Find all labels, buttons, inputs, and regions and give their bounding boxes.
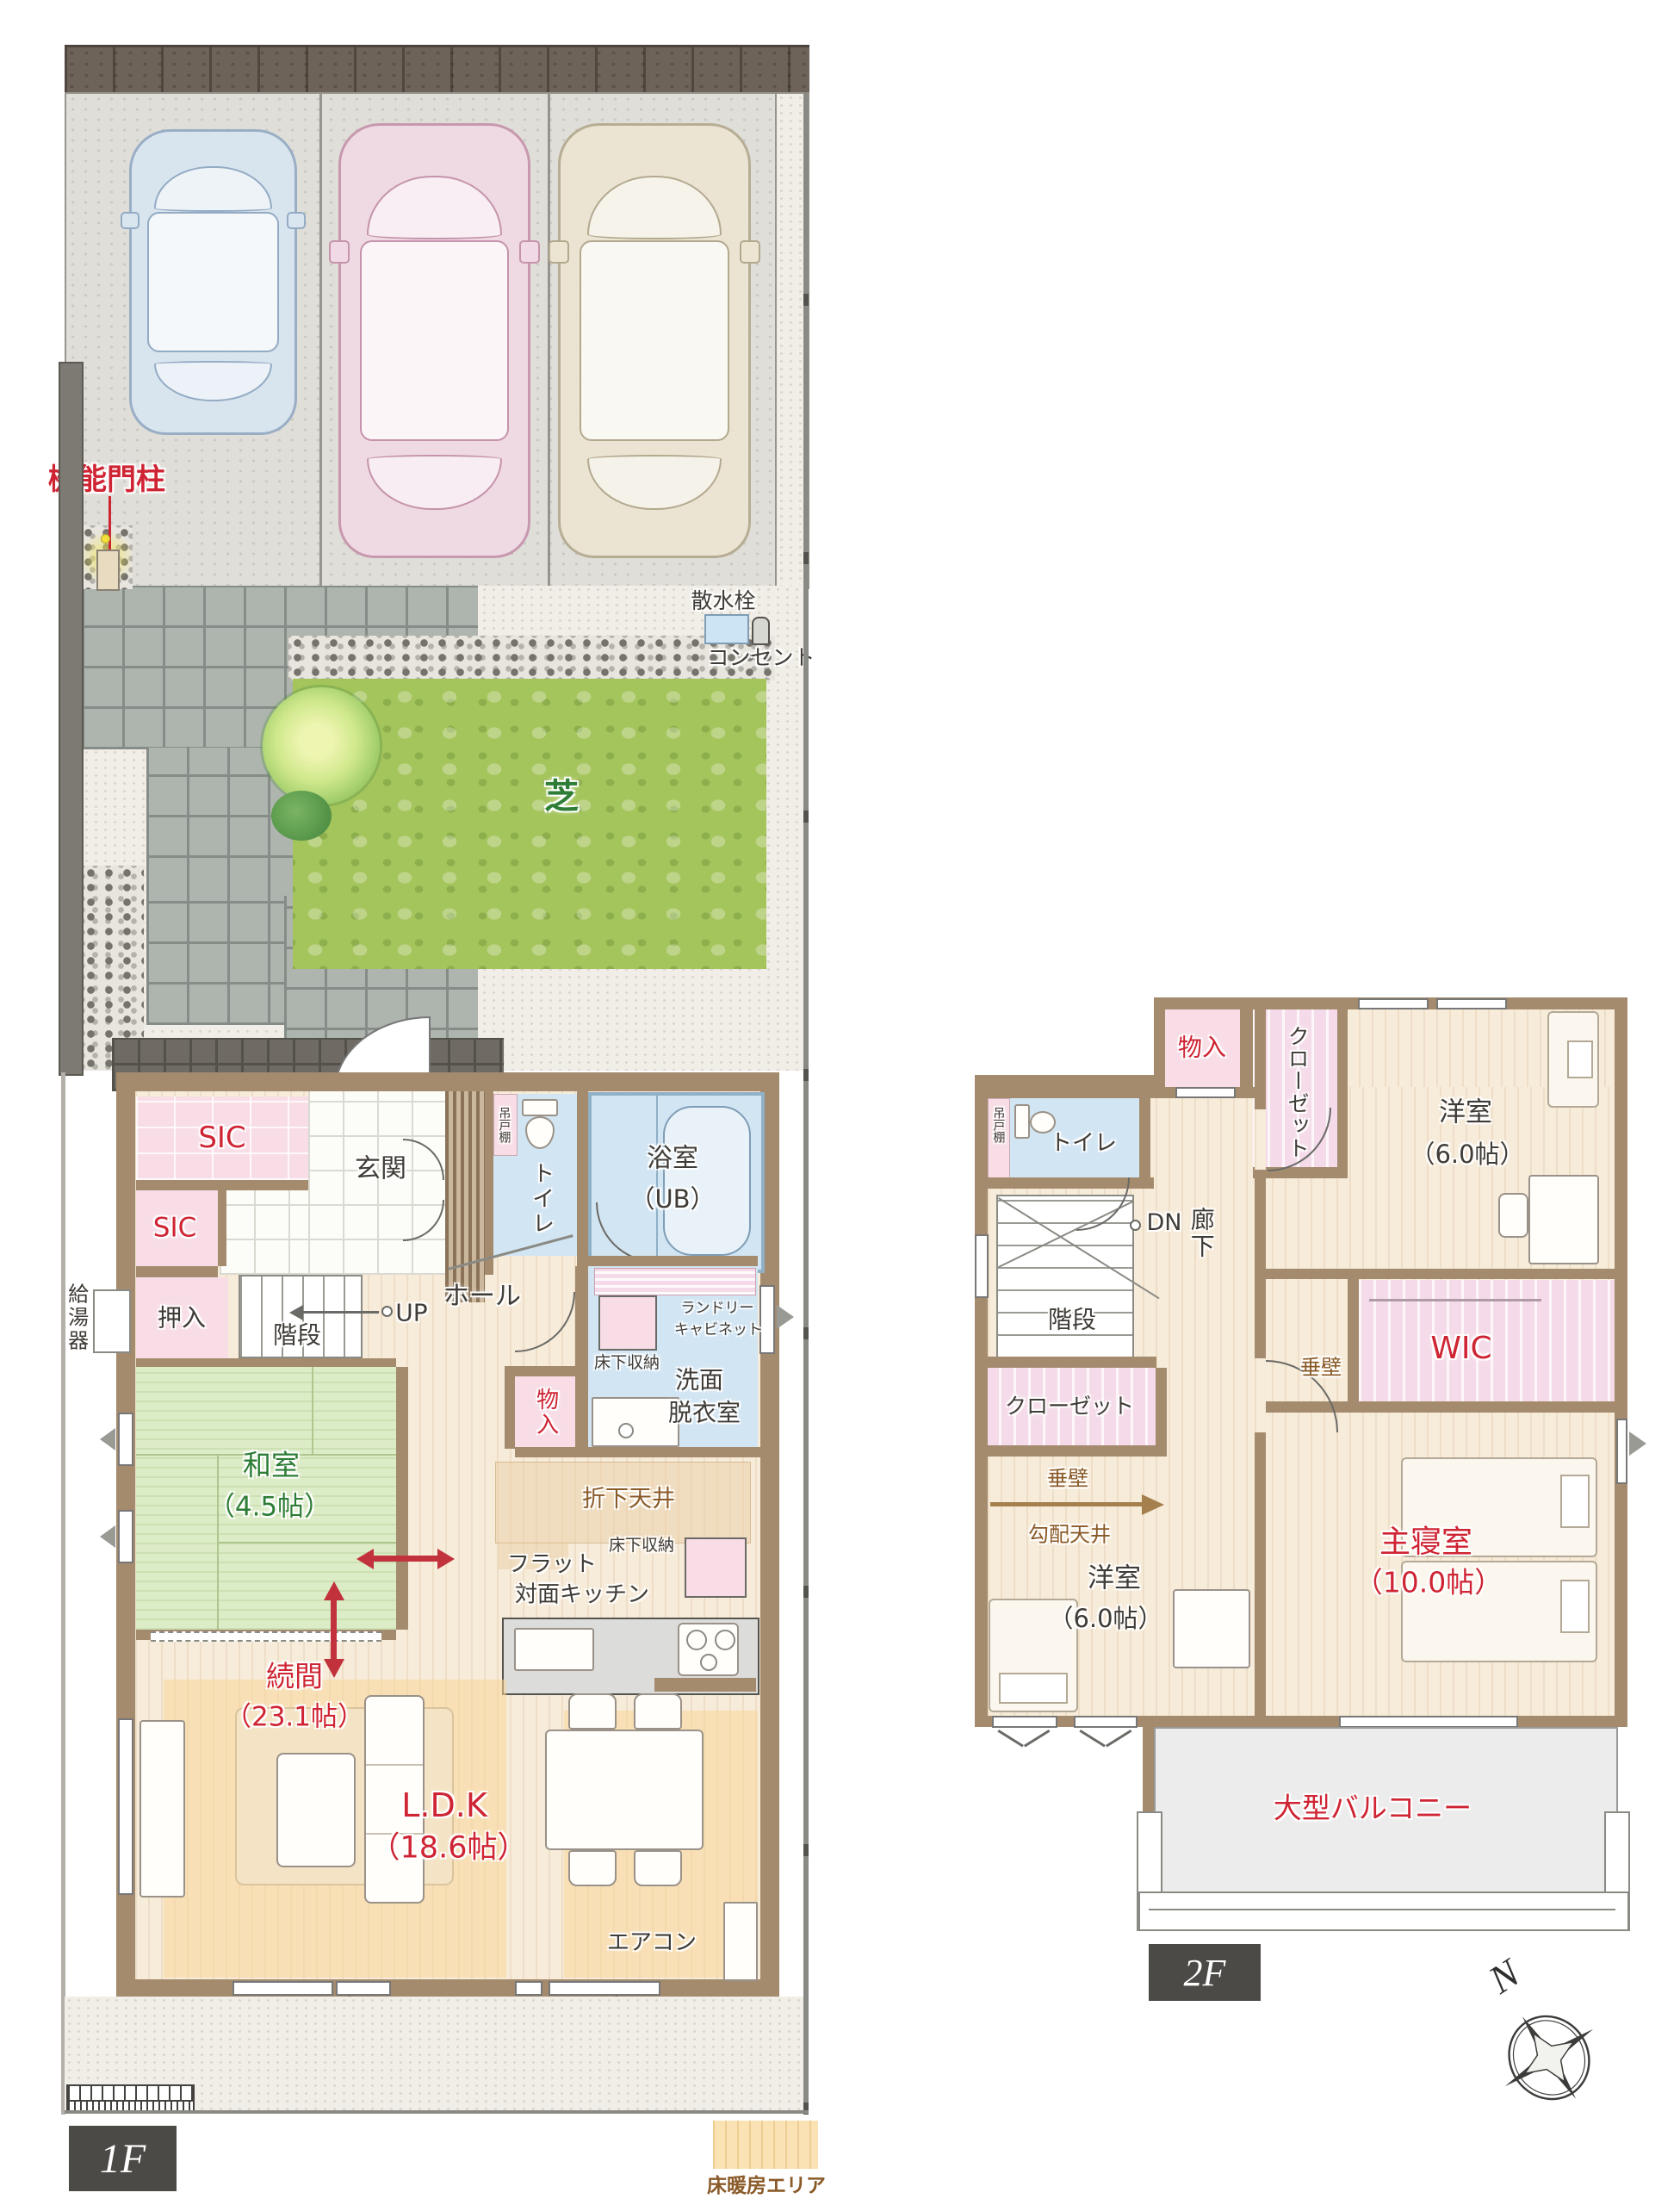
floor2-tag-text: 2F — [1184, 1951, 1226, 1995]
f1-window-west-1 — [118, 1413, 133, 1466]
outlet-label: コンセント — [707, 647, 815, 669]
car-blue — [129, 129, 297, 435]
f1-arrow-v-up — [324, 1581, 344, 1600]
f2-slope-arrow-line — [990, 1502, 1144, 1506]
f2-tarekabe-right-label: 垂壁 — [1300, 1357, 1342, 1378]
car-beige-cabin — [580, 240, 730, 440]
f1-wall-storage-l — [505, 1376, 515, 1449]
f1-slat-screen — [445, 1091, 485, 1302]
f1-window-south-3 — [515, 1981, 542, 1996]
f2-wall-tr-b — [1255, 1269, 1627, 1279]
f2-closet-left-label: クローゼット — [1005, 1395, 1134, 1418]
f1-hanging-shelf-label: 吊戸棚 — [498, 1107, 511, 1143]
compass-north-label: N — [1482, 1952, 1527, 2001]
f2-tarekabe-left-label: 垂壁 — [1047, 1468, 1088, 1489]
sprinkler-box — [704, 614, 749, 644]
f1-washitsu-label-2: （4.5帖） — [208, 1494, 331, 1522]
f2-desk-bl — [1173, 1589, 1250, 1668]
rock-band-lawn — [288, 636, 775, 680]
f1-chair-2 — [634, 1693, 682, 1730]
f2-stairs-label: 階段 — [1048, 1307, 1096, 1332]
f1-stairs-arrow — [301, 1311, 379, 1314]
f1-wall-kitchen-t — [515, 1447, 760, 1457]
f1-window-south-2 — [336, 1981, 391, 1996]
f2-wic-label: WIC — [1430, 1332, 1491, 1365]
f1-wall-toilet-l — [485, 1091, 493, 1275]
f2-balcony-rail-line — [1149, 1909, 1615, 1910]
f1-laundry-cabinet — [594, 1268, 756, 1295]
f2-wall-top-left — [975, 1075, 1165, 1087]
f2-balcony-rail — [1138, 1891, 1629, 1931]
f1-underfloor-kitchen-label: 床下収納 — [609, 1537, 674, 1555]
f1-washroom-window-swing — [777, 1305, 794, 1329]
f2-balcony-wall-stub — [1143, 1716, 1154, 1815]
f1-washitsu-shoji — [151, 1631, 381, 1642]
f2-toilet-fixture — [1014, 1104, 1030, 1139]
f1-up-label: UP — [395, 1300, 427, 1325]
f2-sloped-ceiling-label: 勾配天井 — [1028, 1524, 1111, 1545]
f1-vanity-basin — [618, 1423, 634, 1438]
f1-coffee-table — [276, 1753, 356, 1867]
lawn-label: 芝 — [544, 779, 579, 815]
gatepost-unit — [96, 550, 120, 591]
f1-window-west-swing-1 — [100, 1428, 115, 1450]
f1-storage-label: 物入 — [533, 1388, 556, 1438]
f1-stairs-label: 階段 — [273, 1322, 321, 1347]
f1-genkan-label: 玄関 — [355, 1155, 406, 1183]
f2-chev-bl-2b — [1106, 1730, 1131, 1748]
f2-wall-stairs-b — [984, 1357, 1156, 1368]
f1-ldk-label-1: L.D.K — [401, 1789, 487, 1823]
f1-kitchen-label-1: フラット — [507, 1553, 597, 1576]
f2-master-east-door — [1616, 1419, 1627, 1484]
f2-bedroom-bl-label-1: 洋室 — [1088, 1565, 1141, 1593]
f1-window-west-2 — [118, 1510, 133, 1563]
f2-window-bl-2 — [1074, 1716, 1138, 1728]
f1-wall-storage-t — [505, 1366, 586, 1376]
f2-master-label-1: 主寝室 — [1379, 1526, 1472, 1559]
f1-wall-bath-b — [588, 1256, 758, 1266]
f2-master-bed-1-pillow — [1560, 1475, 1590, 1528]
f1-genkan-tiles-lower — [220, 1180, 308, 1275]
sprinkler-label: 散水栓 — [691, 590, 755, 612]
car-beige — [558, 123, 751, 558]
car-beige-mirror-right — [740, 240, 760, 264]
floor-heating-swatch — [713, 2121, 818, 2169]
f1-tv-board — [139, 1720, 185, 1898]
f1-sic-lower-label: SIC — [153, 1214, 196, 1243]
f2-hanging-shelf-label: 吊戸棚 — [992, 1107, 1005, 1143]
f2-chair-tr — [1498, 1193, 1528, 1238]
f2-wall-storage-left — [1154, 997, 1165, 1098]
f1-burner-1 — [686, 1630, 707, 1650]
f2-window-tr-1 — [1358, 998, 1429, 1009]
parking-divider-1 — [319, 92, 322, 586]
f2-window-bl-1 — [992, 1716, 1057, 1728]
f1-burner-3 — [700, 1654, 717, 1671]
f1-wash-label-1: 洗面 — [675, 1367, 723, 1392]
f1-window-south-4 — [549, 1981, 660, 1996]
compass-rose-svg — [1498, 2003, 1600, 2109]
f2-door-gap-master — [1255, 1358, 1266, 1432]
f2-balcony-window — [1339, 1716, 1518, 1728]
f1-water-heater-unit — [93, 1289, 131, 1353]
car-pink-mirror-right — [519, 240, 540, 264]
f2-bedroom-tr-label-2: （6.0帖） — [1410, 1141, 1524, 1167]
f2-wall-toilet-t — [975, 1087, 1154, 1098]
f1-window-west-ldk — [118, 1718, 133, 1895]
f2-wall-closet-upper-r — [1337, 1009, 1348, 1178]
f2-desk-tr — [1528, 1175, 1599, 1264]
f1-window-west-swing-2 — [100, 1525, 115, 1548]
f1-aircon-label: エアコン — [607, 1931, 697, 1954]
f1-wall-sic — [136, 1180, 308, 1190]
garden-tree — [263, 687, 380, 804]
f1-dining-table — [545, 1730, 704, 1850]
f1-aircon-indoor — [723, 1902, 758, 1981]
f1-arrow-v-down — [324, 1659, 344, 1678]
f1-bathtub — [663, 1106, 751, 1256]
f1-laundry-label-1: ランドリー — [681, 1301, 754, 1317]
f1-vanity — [592, 1397, 679, 1447]
approach-tiles-c — [146, 896, 284, 1025]
f1-tsuzukima-label-1: 続間 — [266, 1662, 323, 1693]
car-blue-mirror-left — [121, 212, 139, 229]
gatepost-light — [101, 534, 110, 543]
f1-toilet-fixture — [522, 1099, 558, 1116]
f2-bed-bl-pillow — [999, 1673, 1068, 1704]
car-beige-mirror-left — [549, 240, 569, 264]
f1-window-south-1 — [232, 1981, 333, 1996]
south-boundary — [65, 2110, 809, 2114]
f2-stairs — [996, 1195, 1134, 1360]
f2-dn-label: DN — [1147, 1211, 1182, 1235]
floor-heating-label: 床暖房エリア — [707, 2176, 826, 2196]
f1-wash-label-2: 脱衣室 — [668, 1400, 741, 1425]
f1-burner-2 — [715, 1630, 735, 1650]
f2-wall-wic-b — [1348, 1401, 1615, 1413]
f2-closet-upper-label: クローゼット — [1286, 1025, 1308, 1159]
f2-storage-label: 物入 — [1178, 1034, 1226, 1059]
f1-arrow-v-line — [331, 1599, 337, 1661]
f2-wall-toilet-r — [1139, 1087, 1150, 1189]
car-blue-mirror-right — [287, 212, 306, 229]
f2-master-bed-2-pillow — [1560, 1580, 1590, 1633]
f2-wall-left — [975, 1075, 988, 1727]
parking-divider-2 — [548, 92, 550, 586]
floorplan-canvas: 芝 散水栓 コンセント 機能門柱 — [0, 0, 1680, 2205]
f1-chair-4 — [634, 1850, 682, 1886]
f2-wic-rod — [1369, 1299, 1541, 1301]
garden-bush — [271, 791, 332, 841]
f2-wall-storage-r — [1240, 997, 1253, 1096]
f2-window-tr-2 — [1436, 998, 1507, 1009]
f1-wall-toilet-r — [577, 1091, 588, 1266]
f2-chev-bl-2a — [1079, 1730, 1105, 1748]
f1-chair-1 — [568, 1693, 617, 1730]
f2-wall-bottom — [975, 1716, 1627, 1727]
f1-kitchen-sink — [514, 1628, 594, 1671]
f2-wall-closet-left-b — [984, 1445, 1167, 1457]
compass-rose — [1498, 2003, 1600, 2109]
road-strip — [65, 45, 809, 97]
right-boundary-line — [803, 92, 809, 2115]
f2-bedroom-tr-label-1: 洋室 — [1439, 1099, 1492, 1127]
f1-underfloor-kitchen-box — [685, 1537, 747, 1598]
f2-wall-closet-left-r — [1156, 1368, 1167, 1445]
f1-arrow-h-line — [372, 1556, 439, 1562]
floor2-tag: 2F — [1149, 1944, 1261, 2001]
car-pink — [338, 123, 530, 558]
f1-washitsu-label-1: 和室 — [243, 1451, 300, 1481]
f1-bath-label-2: （UB） — [629, 1186, 715, 1212]
left-boundary-wall — [59, 362, 84, 1076]
f2-dn-dot — [1130, 1220, 1141, 1231]
car-pink-cabin — [360, 240, 510, 440]
f1-wall-sic2-r — [218, 1190, 226, 1266]
f1-laundry-label-2: キャビネット — [674, 1323, 762, 1339]
f1-sic-upper-label: SIC — [198, 1123, 245, 1154]
f2-storage-door — [1175, 1087, 1236, 1098]
f1-washroom-window — [759, 1285, 775, 1354]
floor1-tag: 1F — [69, 2126, 177, 2191]
f1-kitchen-label-2: 対面キッチン — [515, 1583, 649, 1606]
f2-bedroom-bl-label-2: （6.0帖） — [1048, 1606, 1162, 1631]
car-blue-cabin — [147, 212, 278, 352]
f2-chev-bl-1b — [1024, 1730, 1050, 1748]
f1-arrow-h-right — [437, 1549, 455, 1569]
f1-underfloor-wash-box — [598, 1295, 657, 1351]
f1-wall-oshiire-b — [136, 1358, 396, 1367]
car-pink-mirror-left — [329, 240, 350, 264]
f1-tatami-line-v1 — [312, 1367, 313, 1454]
f1-dropped-ceiling-label: 折下天井 — [582, 1488, 675, 1512]
f1-oshiire-label: 押入 — [158, 1305, 206, 1330]
left-boundary-line — [61, 1072, 65, 2115]
f2-chev-bl-1a — [997, 1730, 1023, 1748]
f1-wall-counter-end — [654, 1678, 756, 1692]
f1-stairs-arrowhead — [289, 1305, 303, 1320]
f2-balcony-label: 大型バルコニー — [1274, 1794, 1472, 1824]
f1-tsuzukima-label-2: （23.1帖） — [225, 1704, 364, 1732]
f1-toilet-label: トイレ — [529, 1162, 552, 1237]
f1-hall-label: ホール — [443, 1283, 521, 1310]
f2-master-label-2: （10.0帖） — [1355, 1568, 1503, 1599]
f2-slope-arrowhead — [1142, 1494, 1164, 1515]
f2-bed-tr-pillow — [1567, 1040, 1593, 1078]
f2-wall-right — [1615, 997, 1627, 1727]
f2-door-gap-tr — [1255, 1109, 1266, 1170]
f1-wall-washitsu-r — [396, 1367, 408, 1630]
f1-bath-divider — [656, 1096, 658, 1263]
f2-window-stairs-west — [975, 1234, 989, 1298]
f1-ldk-label-2: （18.6帖） — [370, 1833, 528, 1865]
f1-arrow-h-left — [356, 1549, 374, 1569]
f2-wall-wic-l — [1348, 1279, 1359, 1401]
f2-corridor-label: 廊下 — [1188, 1207, 1213, 1260]
floor1-tag-text: 1F — [100, 2135, 146, 2183]
outlet-icon — [752, 617, 770, 645]
f1-wall-sic2-b — [136, 1266, 218, 1277]
f1-underfloor-wash-label: 床下収納 — [594, 1355, 660, 1372]
f2-master-east-swing — [1629, 1432, 1646, 1456]
f1-wall-storage-r — [575, 1266, 588, 1449]
f1-tatami-line-h2 — [217, 1542, 396, 1543]
f1-chair-3 — [568, 1850, 617, 1886]
f1-up-dot — [381, 1306, 393, 1317]
f1-bath-label-1: 浴室 — [647, 1145, 698, 1172]
f2-toilet-label: トイレ — [1050, 1132, 1117, 1155]
water-heater-label: 給湯器 — [65, 1283, 86, 1353]
